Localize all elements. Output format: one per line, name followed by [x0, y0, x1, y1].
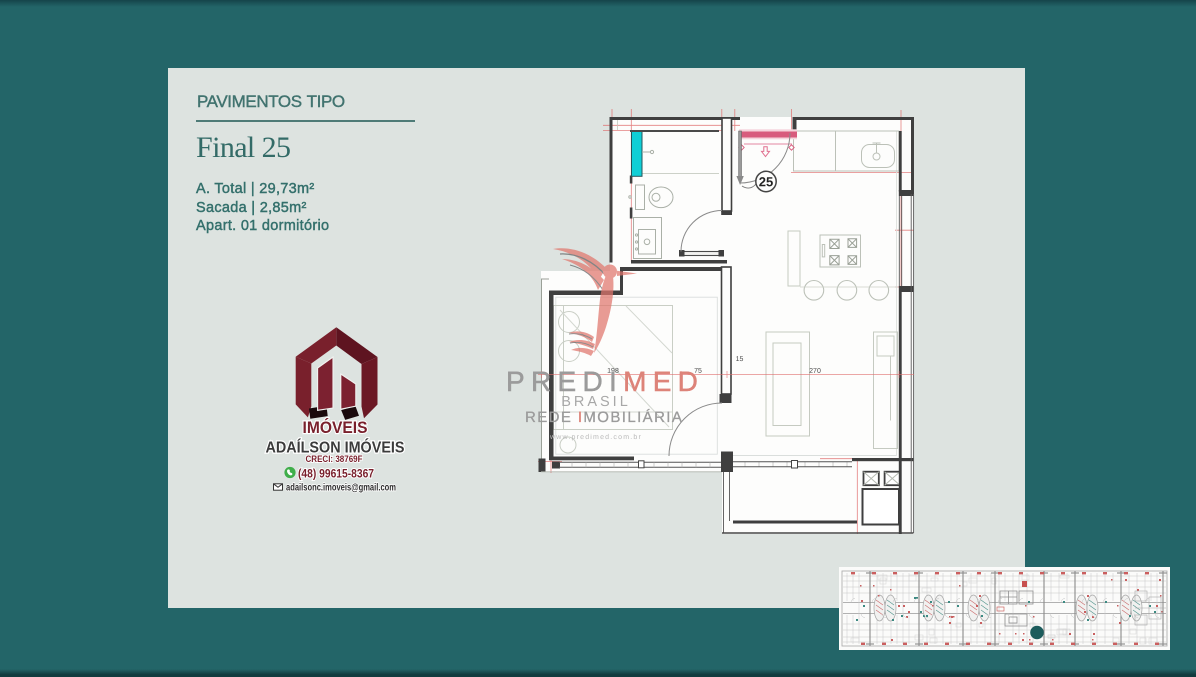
svg-text:www.predimed.com.br: www.predimed.com.br — [549, 434, 642, 441]
svg-text:25: 25 — [759, 174, 773, 189]
svg-text:270: 270 — [809, 368, 821, 375]
svg-text:15: 15 — [736, 356, 744, 363]
svg-text:CRECI: 38769F: CRECI: 38769F — [306, 454, 363, 464]
svg-text:IMÓVEIS: IMÓVEIS — [303, 418, 368, 437]
svg-text:(48) 99615-8367: (48) 99615-8367 — [298, 466, 374, 480]
svg-text:adailsonc.imoveis@gmail.com: adailsonc.imoveis@gmail.com — [286, 482, 396, 493]
svg-text:PREDIMED: PREDIMED — [506, 366, 704, 397]
svg-text:REDE IMOBILIÁRIA: REDE IMOBILIÁRIA — [525, 409, 683, 426]
svg-text:BRASIL: BRASIL — [561, 394, 631, 410]
